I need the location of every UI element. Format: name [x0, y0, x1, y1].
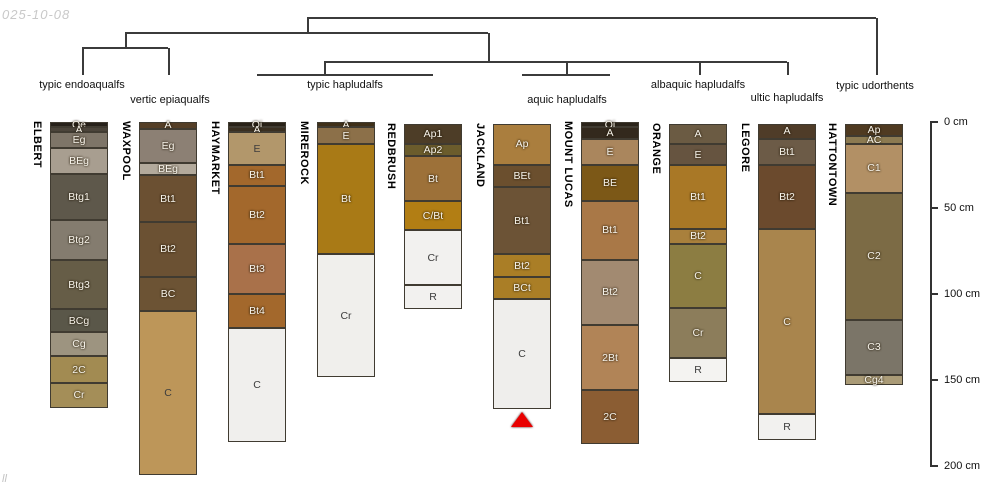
horizon-block [845, 136, 903, 145]
horizon-block [669, 244, 727, 308]
group-label: typic udorthents [836, 80, 914, 92]
horizon-block [845, 375, 903, 385]
horizon-block [669, 358, 727, 382]
horizon-block [228, 132, 286, 165]
horizon-block [139, 277, 197, 311]
depth-tick-label: 200 cm [944, 460, 980, 472]
horizon-block [139, 311, 197, 474]
horizon-block [317, 254, 375, 376]
tree-link-vertical [787, 62, 789, 75]
horizon-block [669, 144, 727, 165]
horizon-block [669, 229, 727, 244]
horizon-block [845, 124, 903, 136]
tree-link-horizontal [324, 61, 787, 63]
tree-link-vertical [699, 62, 701, 75]
horizon-block [317, 127, 375, 144]
tree-link-horizontal [307, 17, 876, 19]
series-name-label: ELBERT [31, 121, 43, 168]
horizon-block [669, 308, 727, 358]
group-label: vertic epiaqualfs [130, 94, 210, 106]
horizon-block [50, 309, 108, 331]
horizon-block [669, 124, 727, 145]
depth-tick [930, 121, 938, 123]
horizon-block [50, 220, 108, 260]
profile-marker-triangle [511, 412, 533, 427]
horizon-block [758, 165, 816, 229]
horizon-block [404, 156, 462, 201]
figure-canvas: 025-10-08 typic endoaqualfsvertic epiaqu… [0, 0, 1000, 500]
horizon-block [228, 294, 286, 328]
series-name-label: REDBRUSH [385, 123, 397, 189]
horizon-block [581, 139, 639, 165]
series-name-label: HATTONTOWN [826, 123, 838, 206]
tree-link-vertical [307, 18, 309, 33]
horizon-block [758, 124, 816, 139]
horizon-block [404, 285, 462, 309]
horizon-block [50, 260, 108, 310]
horizon-block [139, 175, 197, 221]
tree-link-vertical [125, 33, 127, 48]
horizon-block [404, 201, 462, 230]
horizon-block [50, 132, 108, 147]
tree-link-vertical [488, 33, 490, 62]
horizon-block [493, 277, 551, 299]
tree-link-vertical [566, 62, 568, 75]
series-name-label: WAXPOOL [120, 121, 132, 181]
group-label: albaquic hapludalfs [651, 79, 745, 91]
series-name-label: MOUNT LUCAS [562, 121, 574, 208]
depth-tick [930, 379, 938, 381]
horizon-block [845, 320, 903, 375]
horizon-block [845, 144, 903, 192]
depth-tick [930, 207, 938, 209]
series-name-label: HAYMARKET [209, 121, 221, 195]
tree-link-horizontal [522, 74, 610, 76]
horizon-block [493, 165, 551, 187]
horizon-block [581, 325, 639, 390]
footer-mark: ll [2, 473, 7, 485]
horizon-block [50, 174, 108, 220]
depth-tick [930, 293, 938, 295]
horizon-block [228, 244, 286, 294]
horizon-block [228, 328, 286, 442]
horizon-block [50, 356, 108, 384]
depth-tick [930, 465, 938, 467]
horizon-block [139, 122, 197, 129]
horizon-block [317, 144, 375, 254]
horizon-block [581, 390, 639, 443]
depth-tick-label: 0 cm [944, 116, 968, 128]
horizon-block [139, 129, 197, 163]
horizon-block [493, 187, 551, 254]
tree-link-vertical [876, 18, 878, 75]
horizon-block [404, 144, 462, 156]
tree-link-horizontal [125, 32, 488, 34]
date-stamp: 025-10-08 [2, 7, 70, 22]
horizon-block [758, 139, 816, 165]
horizon-block [493, 254, 551, 276]
horizon-block [493, 299, 551, 409]
group-label: typic endoaqualfs [39, 79, 125, 91]
series-name-label: MIREROCK [298, 121, 310, 185]
series-name-label: ORANGE [650, 123, 662, 174]
series-name-label: JACKLAND [474, 123, 486, 188]
horizon-block [228, 165, 286, 186]
tree-link-horizontal [257, 74, 433, 76]
group-label: typic hapludalfs [307, 79, 383, 91]
series-name-label: LEGORE [739, 123, 751, 172]
tree-link-vertical [82, 48, 84, 75]
depth-tick-label: 150 cm [944, 374, 980, 386]
horizon-block [581, 260, 639, 325]
depth-tick-label: 50 cm [944, 202, 974, 214]
horizon-block [581, 201, 639, 259]
horizon-block [845, 193, 903, 320]
horizon-block [493, 124, 551, 165]
horizon-block [404, 230, 462, 285]
horizon-block [581, 127, 639, 139]
horizon-block [139, 222, 197, 277]
tree-link-horizontal [82, 47, 168, 49]
horizon-block [758, 229, 816, 415]
tree-link-vertical [168, 48, 170, 75]
horizon-block [581, 165, 639, 201]
horizon-block [50, 383, 108, 407]
horizon-block [669, 165, 727, 229]
horizon-block [228, 186, 286, 244]
group-label: ultic hapludalfs [751, 92, 824, 104]
horizon-block [50, 148, 108, 174]
tree-link-vertical [324, 62, 326, 75]
group-label: aquic hapludalfs [527, 94, 607, 106]
horizon-block [404, 124, 462, 145]
depth-tick-label: 100 cm [944, 288, 980, 300]
horizon-block [139, 163, 197, 175]
horizon-block [758, 414, 816, 440]
horizon-block [50, 332, 108, 356]
